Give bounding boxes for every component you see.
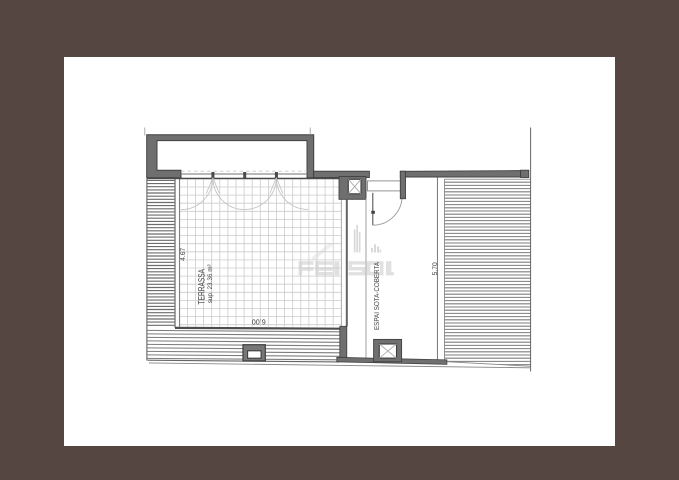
svg-text:5.70: 5.70: [432, 262, 439, 275]
svg-text:sup. 23.36 m²: sup. 23.36 m²: [207, 264, 214, 304]
svg-text:ESPAI SOTA-COBERTA: ESPAI SOTA-COBERTA: [374, 262, 381, 330]
svg-text:4.67: 4.67: [180, 247, 187, 260]
svg-text:TERRASSA: TERRASSA: [196, 268, 206, 304]
svg-text:6.00: 6.00: [252, 318, 266, 327]
